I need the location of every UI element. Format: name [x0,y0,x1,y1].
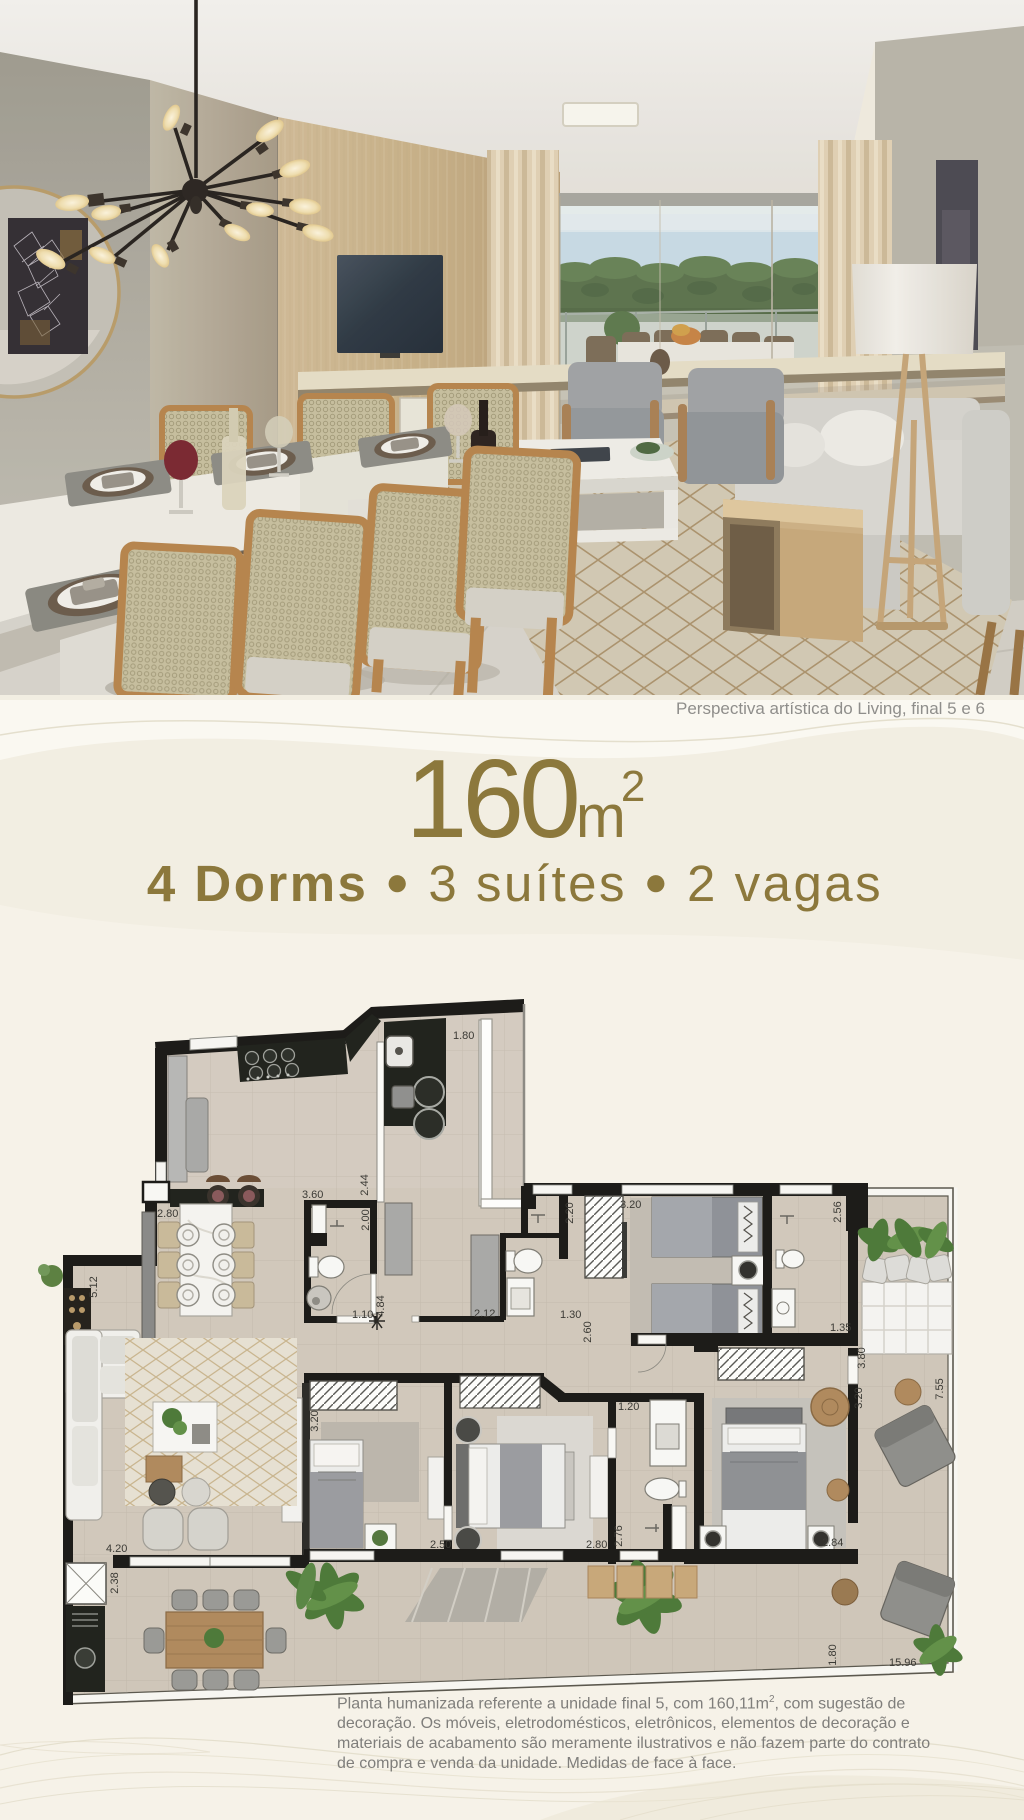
svg-text:2.56: 2.56 [832,1201,844,1222]
svg-text:5.12: 5.12 [88,1276,100,1297]
svg-text:2.00: 2.00 [360,1209,372,1230]
svg-text:3.20: 3.20 [309,1410,321,1431]
svg-text:3.20: 3.20 [853,1387,865,1408]
svg-text:4.20: 4.20 [106,1543,127,1555]
svg-text:2.76: 2.76 [613,1525,625,1546]
svg-text:2.44: 2.44 [359,1174,371,1195]
svg-text:7.55: 7.55 [934,1378,946,1399]
svg-text:1.30: 1.30 [560,1309,581,1321]
svg-text:1.80: 1.80 [453,1030,474,1042]
svg-text:2.12: 2.12 [474,1308,495,1320]
svg-text:3.80: 3.80 [856,1347,868,1368]
svg-text:2.80: 2.80 [586,1539,607,1551]
svg-text:4.84: 4.84 [375,1295,387,1316]
svg-text:15.96: 15.96 [889,1657,917,1669]
svg-text:2.38: 2.38 [109,1572,121,1593]
svg-text:1.20: 1.20 [618,1401,639,1413]
svg-text:2.80: 2.80 [157,1208,178,1220]
svg-text:3.60: 3.60 [302,1189,323,1201]
svg-text:1.10: 1.10 [352,1309,373,1321]
svg-text:2.50: 2.50 [430,1539,451,1551]
svg-text:3.20: 3.20 [620,1199,641,1211]
svg-text:1.35: 1.35 [830,1322,851,1334]
svg-text:2.60: 2.60 [582,1321,594,1342]
svg-text:2.84: 2.84 [822,1537,843,1549]
svg-text:1.80: 1.80 [827,1644,839,1665]
svg-text:2.20: 2.20 [564,1202,576,1223]
